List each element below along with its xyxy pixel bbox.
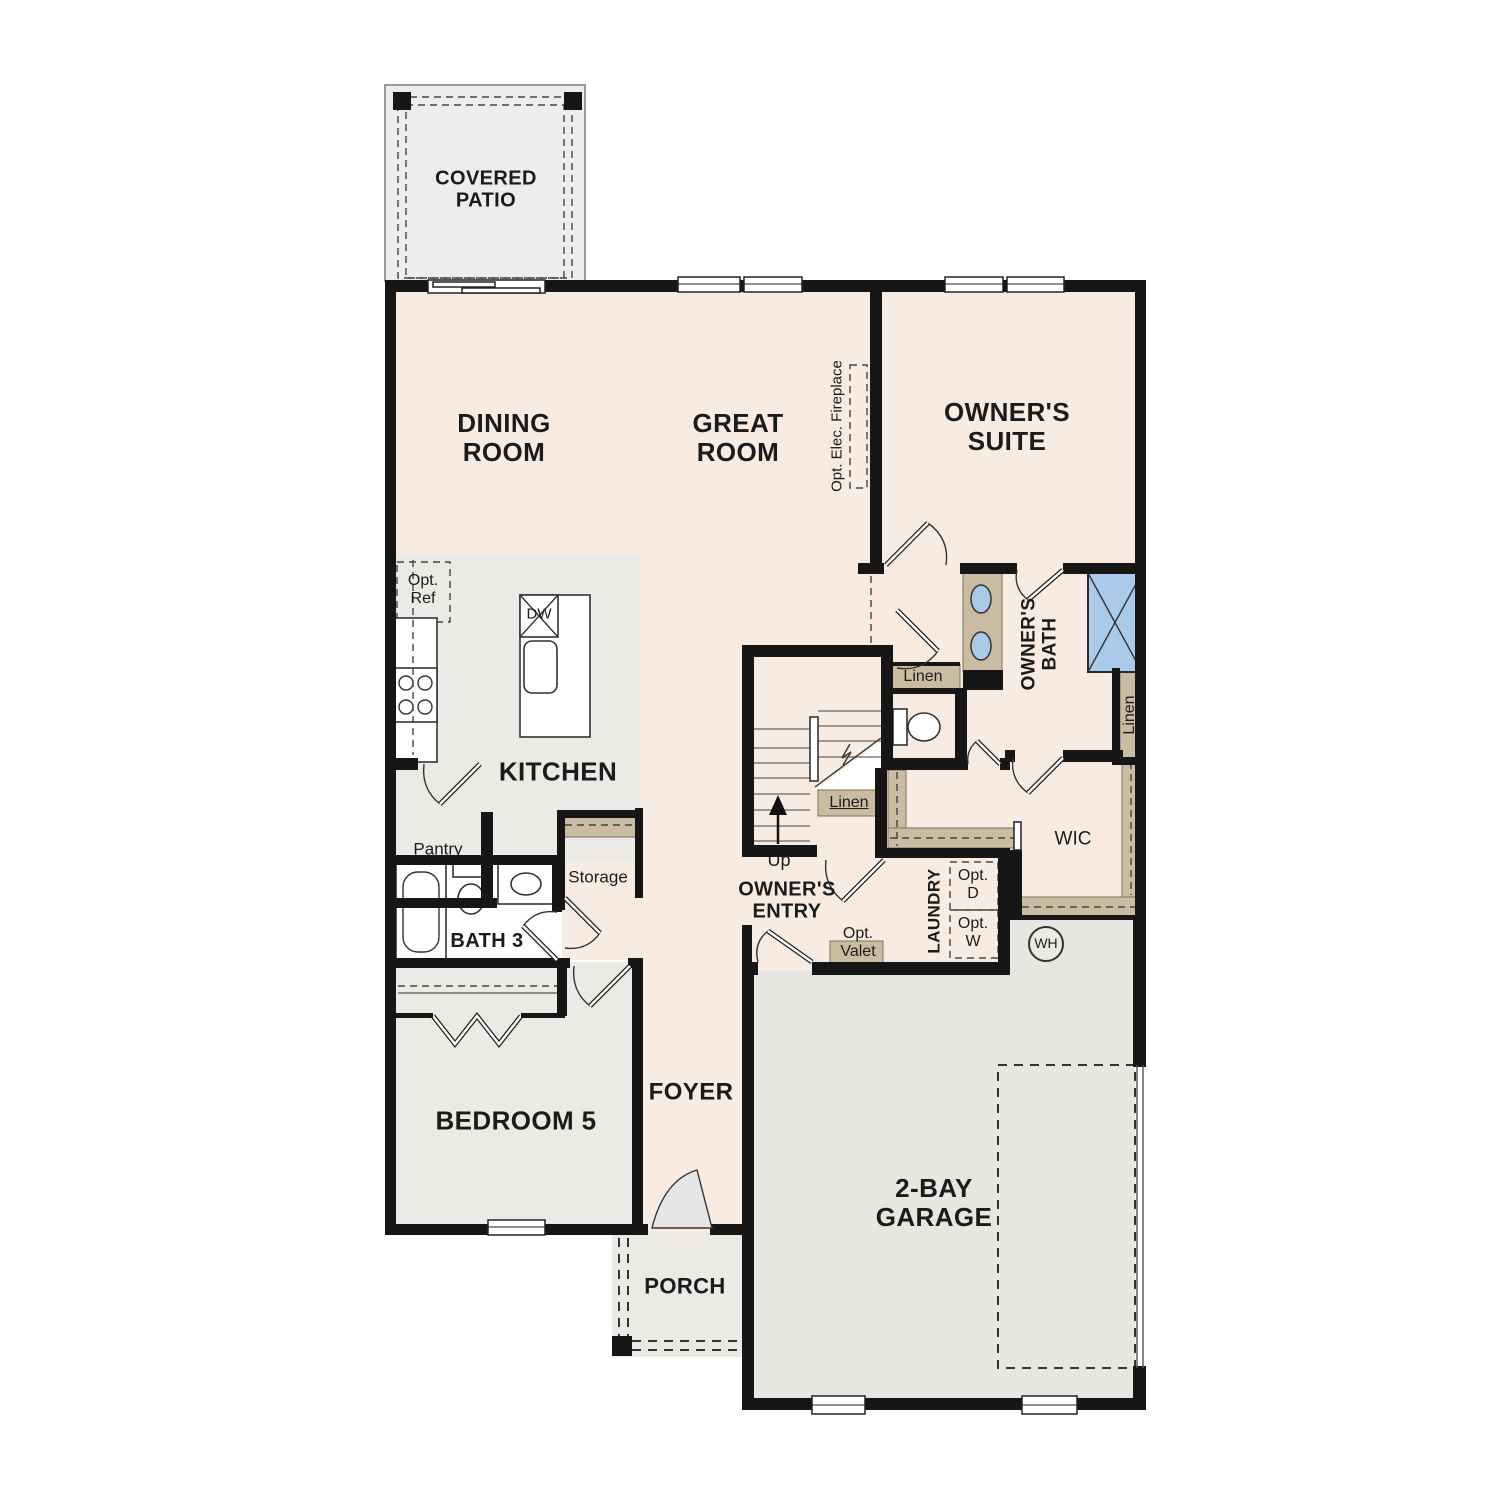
porch-post: [612, 1336, 632, 1356]
patio-post-left: [393, 92, 411, 110]
label-water-heater: WH: [1034, 936, 1057, 952]
label-linen-bath: Linen: [903, 668, 942, 686]
patio-post-right: [564, 92, 582, 110]
label-dishwasher: DW: [527, 607, 552, 624]
room-label-porch: PORCH: [644, 1275, 725, 1300]
room-label-dining: DINING ROOM: [449, 409, 559, 467]
wic-door-jamb: [1014, 822, 1021, 850]
room-label-garage: 2-BAY GARAGE: [859, 1174, 1009, 1232]
floor-plan: COVERED PATIO DINING ROOM GREAT ROOM OWN…: [0, 0, 1500, 1500]
label-opt-dryer: Opt. D: [953, 867, 993, 903]
label-opt-valet: Opt. Valet: [834, 925, 882, 961]
room-label-covered-patio: COVERED PATIO: [431, 168, 541, 213]
vanity-sink: [971, 585, 991, 613]
stair-railing: [810, 717, 818, 781]
label-opt-elec-fireplace: Opt. Elec. Fireplace: [830, 360, 847, 492]
room-label-bath3: BATH 3: [450, 930, 523, 952]
label-opt-washer: Opt. W: [953, 915, 993, 951]
room-label-great: GREAT ROOM: [683, 409, 793, 467]
room-label-owners-entry: OWNER'S ENTRY: [730, 879, 845, 924]
vanity-sink: [971, 632, 991, 660]
label-pantry: Pantry: [413, 839, 462, 858]
island-sink: [524, 641, 557, 693]
toilet-bowl: [908, 713, 940, 741]
floor-plan-drawing: [0, 0, 1500, 1500]
label-opt-ref: Opt. Ref: [400, 572, 446, 608]
room-label-foyer: FOYER: [649, 1080, 734, 1107]
room-label-kitchen: KITCHEN: [499, 757, 617, 786]
room-label-laundry: LAUNDRY: [924, 868, 943, 953]
stove: [393, 668, 437, 722]
label-linen-wic: Linen: [1121, 695, 1139, 734]
bath3-sink: [511, 873, 541, 895]
room-label-owners-bath: OWNER'S BATH: [1019, 592, 1062, 696]
room-label-bedroom5: BEDROOM 5: [435, 1106, 596, 1135]
label-up: Up: [767, 850, 790, 870]
toilet-tank: [893, 709, 907, 745]
bedroom5-floor: [396, 962, 636, 1226]
room-label-owners-suite: OWNER'S SUITE: [937, 398, 1077, 456]
label-linen-stairs: Linen: [829, 794, 868, 812]
label-storage: Storage: [568, 867, 628, 886]
room-label-wic: WIC: [1055, 828, 1092, 849]
foyer-floor: [637, 555, 742, 1235]
